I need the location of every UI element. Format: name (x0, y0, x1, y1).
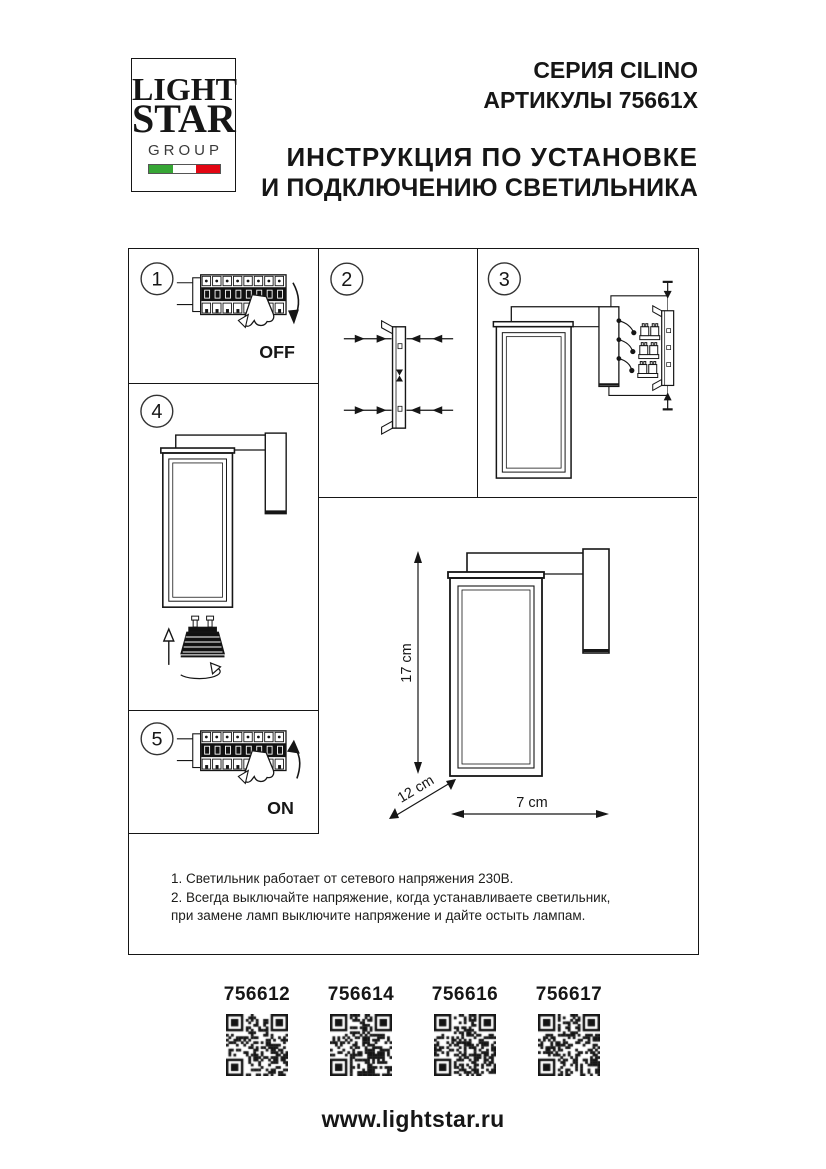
step-number-circle: 1 (141, 263, 173, 295)
arrow-down-icon (288, 283, 299, 325)
wall-lamp-icon (493, 307, 618, 478)
step-3-number: 3 (499, 269, 510, 291)
qr-item: 756616 (430, 984, 500, 1076)
note-line-2: 2. Всегда выключайте напряжение, когда у… (171, 889, 651, 908)
step-4-panel: 4 (129, 384, 319, 711)
width-label: 7 cm (516, 795, 547, 811)
step-1-panel: 1 OFF (129, 249, 319, 384)
instruction-title-line1: ИНСТРУКЦИЯ ПО УСТАНОВКЕ (261, 142, 698, 173)
insert-arrow-up-icon (164, 629, 174, 665)
wall-lamp-icon (448, 549, 609, 776)
step-number-circle: 5 (141, 723, 173, 755)
series-title: СЕРИЯ CILINO (261, 55, 698, 85)
arrow-up-icon (287, 740, 300, 779)
step-number-circle: 4 (141, 395, 173, 427)
qr-item: 756612 (222, 984, 292, 1076)
safety-notes: 1. Светильник работает от сетевого напря… (171, 870, 651, 926)
off-label: OFF (259, 342, 295, 362)
step-2-number: 2 (341, 269, 352, 291)
articles-title: АРТИКУЛЫ 75661X (261, 85, 698, 115)
width-dimension: 7 cm (451, 795, 609, 818)
qr-code-row: 756612 756614 756616 756617 (0, 984, 826, 1076)
title-block: СЕРИЯ CILINO АРТИКУЛЫ 75661X ИНСТРУКЦИЯ … (261, 55, 698, 203)
instruction-title-line2: И ПОДКЛЮЧЕНИЮ СВЕТИЛЬНИКА (261, 173, 698, 203)
qr-code-icon (434, 1014, 496, 1076)
step-number-circle: 3 (488, 263, 520, 295)
depth-label: 12 cm (395, 773, 437, 807)
note-line-1: 1. Светильник работает от сетевого напря… (171, 870, 651, 889)
qr-code-icon (330, 1014, 392, 1076)
flag-green-segment (149, 165, 173, 173)
step-2-panel: 2 (319, 249, 478, 498)
flag-white-segment (173, 165, 197, 173)
gu10-lamp-icon (181, 616, 225, 656)
height-dimension: 17 cm (399, 551, 422, 774)
circuit-breaker-icon (177, 731, 286, 784)
step-1-number: 1 (151, 269, 162, 291)
rotate-arrow-icon (181, 663, 221, 679)
article-number: 756617 (534, 984, 604, 1006)
flag-red-segment (196, 165, 220, 173)
step-5-number: 5 (152, 729, 163, 751)
on-label: ON (267, 798, 294, 818)
step-5-panel: 5 ON (129, 711, 319, 834)
step-3-panel: 3 (478, 249, 697, 498)
step-4-number: 4 (151, 401, 162, 423)
instruction-page: LIGHT STAR GROUP СЕРИЯ CILINO АРТИКУЛЫ 7… (0, 0, 826, 1169)
article-number: 756614 (326, 984, 396, 1006)
note-line-3: при замене ламп выключите напряжение и д… (171, 907, 651, 926)
article-number: 756616 (430, 984, 500, 1006)
qr-code-icon (226, 1014, 288, 1076)
qr-item: 756614 (326, 984, 396, 1076)
wall-lamp-icon (161, 433, 286, 607)
article-number: 756612 (222, 984, 292, 1006)
qr-code-icon (538, 1014, 600, 1076)
logo-star-text: STAR (132, 99, 235, 139)
dimension-drawing: 17 cm 12 cm 7 cm (319, 498, 697, 834)
depth-dimension: 12 cm (389, 773, 456, 819)
circuit-breaker-icon (177, 275, 286, 328)
height-label: 17 cm (399, 643, 415, 683)
website-url: www.lightstar.ru (0, 1106, 826, 1133)
diagram-frame: 1 OFF 4 (128, 248, 699, 955)
logo-group-text: GROUP (132, 142, 235, 159)
wires-and-terminals-icon (616, 318, 659, 377)
lightstar-logo: LIGHT STAR GROUP (131, 58, 236, 192)
qr-item: 756617 (534, 984, 604, 1076)
step-number-circle: 2 (331, 263, 363, 295)
mounting-bracket-icon (344, 321, 453, 434)
italian-flag-icon (148, 164, 221, 174)
